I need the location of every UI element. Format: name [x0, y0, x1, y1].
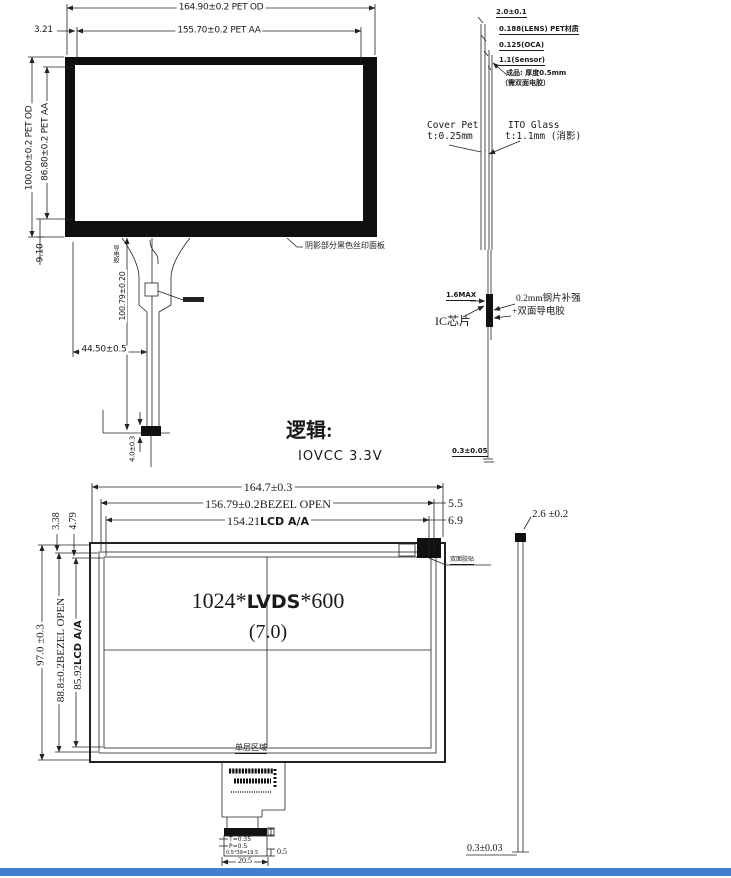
- layer-sensor-label: 1.1(Sensor): [499, 57, 545, 66]
- resolution-interface: LVDS: [247, 591, 301, 613]
- dim-bezel-height-value: 88.8±0.2: [55, 663, 67, 702]
- dim-bottom-offset: 9.10: [37, 244, 46, 263]
- dim-top-offset-bezel: 3.38: [52, 512, 62, 530]
- layer-oca-label: 0.125(OCA): [499, 42, 544, 51]
- panel-size: (7.0): [249, 622, 287, 642]
- stiffener-note-line1: 0.2mm钢片补强: [516, 295, 581, 305]
- silkscreen-note: 阴影部分黑色丝印面板: [305, 242, 385, 250]
- dim-module-thickness: 2.6 ±0.2: [532, 509, 568, 520]
- dim-pet-od-height: 100.00±0.2 PET OD: [26, 104, 35, 193]
- dim-tail-length: 100.79±0.20: [119, 269, 127, 322]
- dim-outline-height: 97.0 ±0.3: [36, 622, 47, 668]
- dim-top-offset-aa: 4.79: [69, 512, 79, 530]
- cover-pet-name: Cover Pet: [427, 121, 478, 131]
- drawing1-front-view: [28, 4, 377, 467]
- dim-aa-width-value: 154.21: [227, 514, 260, 528]
- footer-bar: [0, 868, 731, 876]
- resolution-prefix: 1024*: [192, 588, 247, 613]
- diagram-canvas: [0, 0, 731, 878]
- tape-label: 双面胶贴: [450, 557, 474, 565]
- lcd-aa-label: LCD A/A: [73, 620, 84, 665]
- dim-aa-height: 85.92LCD A/A: [68, 618, 84, 691]
- touch-panel-engineering-drawing: 164.90±0.2 PET OD 155.70±0.2 PET AA 3.21…: [0, 0, 731, 878]
- adhesive-note-line1: 成品: 厚度0.5mm: [506, 70, 566, 77]
- dim-connector: 4.0±0.3: [130, 436, 137, 462]
- stiffener-note-line2: +双面导电胶: [512, 308, 565, 318]
- dim-right-offset-aa: 6.9: [448, 514, 463, 526]
- resolution-suffix: *600: [300, 588, 344, 613]
- dim-total-thickness: 2.0±0.1: [496, 9, 527, 18]
- dim-aa-width: 154.21LCD A/A: [225, 512, 311, 528]
- dim-aa-height-value: 85.92: [72, 665, 84, 690]
- dim-bezel-width: 156.79±0.2BEZEL OPEN: [203, 495, 333, 511]
- ito-glass-name: ITO Glass: [508, 121, 559, 131]
- dim-fpc-thickness: 0.3±0.05: [452, 448, 488, 457]
- dim-pet-aa-height: 86.80±0.2 PET AA: [42, 101, 51, 183]
- dim-tail-offset: 44.50±0.5: [80, 346, 129, 355]
- cover-pet-thickness: t:0.25mm: [427, 132, 473, 142]
- bezel-open-label: BEZEL OPEN: [260, 497, 331, 511]
- logic-io-vcc: IOVCC 3.3V: [298, 450, 383, 463]
- dim-sideview-fpc-thickness: 0.3±0.03: [467, 844, 503, 854]
- dim-ic-height-max: 1.6MAX: [446, 292, 476, 301]
- conductive-adhesive-label: 导电胶: [112, 245, 118, 263]
- lcd-aa-label: LCD A/A: [260, 515, 309, 528]
- single-layer-label: 单层区域: [235, 744, 267, 754]
- bezel-open-label: BEZEL OPEN: [55, 598, 67, 663]
- panel-resolution: 1024*LVDS*600: [192, 590, 345, 612]
- dim-pet-od-width: 164.90±0.2 PET OD: [177, 4, 266, 13]
- dim-right-offset-bezel: 5.5: [448, 497, 463, 509]
- drawing2-side-view: [466, 517, 531, 855]
- logic-heading: 逻辑:: [286, 421, 333, 441]
- dim-outline-width: 164.7±0.3: [242, 481, 295, 493]
- dim-bezel-height: 88.8±0.2BEZEL OPEN: [51, 596, 67, 704]
- dim-connector-edge: 0.5: [277, 848, 287, 856]
- ic-label: IC芯片: [435, 315, 471, 327]
- dim-left-offset: 3.21: [34, 26, 53, 35]
- adhesive-note-line2: （需双面电胶）: [501, 80, 550, 87]
- layer-lens-label: 0.188(LENS) PET材质: [499, 26, 579, 35]
- dim-bezel-width-value: 156.79±0.2: [205, 497, 260, 511]
- dim-pet-aa-width: 155.70±0.2 PET AA: [175, 27, 262, 36]
- dim-connector-width: 20.5: [236, 857, 254, 865]
- ito-glass-thickness: t:1.1mm (消影): [505, 132, 581, 142]
